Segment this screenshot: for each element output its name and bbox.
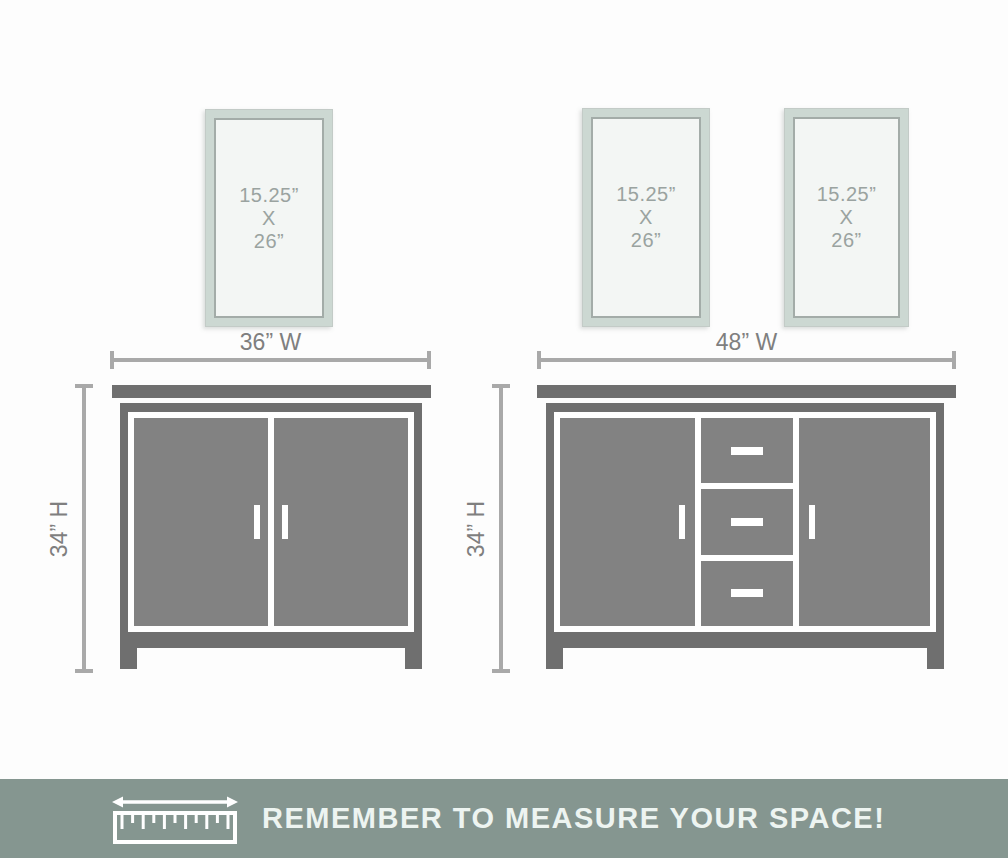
mirror-large-vanity-left: 15.25” X 26” [582, 108, 710, 327]
height-dimension-small: 34” H [75, 384, 93, 673]
mirror-height-text: 26” [616, 229, 676, 252]
width-dimension-label: 48” W [537, 331, 956, 354]
mirror-large-vanity-right: 15.25” X 26” [784, 108, 909, 327]
dimension-endcap-bottom [75, 669, 93, 673]
dimension-line [112, 358, 429, 362]
mirror-size-label: 15.25” X 26” [616, 183, 676, 252]
reminder-banner: REMEMBER TO MEASURE YOUR SPACE! [0, 779, 1008, 858]
cabinet-door-right [799, 418, 930, 626]
width-dimension-label: 36” W [110, 331, 431, 354]
mirror-width-text: 15.25” [239, 184, 299, 207]
countertop [537, 385, 956, 398]
drawer-top [701, 418, 793, 483]
drawer-middle [701, 489, 793, 554]
leg-right [405, 648, 422, 669]
mirror-x-text: X [616, 206, 676, 229]
dimension-endcap-right [952, 351, 956, 369]
door-handle [254, 505, 260, 539]
cabinet-face-panel [128, 412, 414, 632]
door-handle [679, 505, 685, 539]
vanity-size-diagram: 15.25” X 26” 15.25” X 26” 15.25” X 26” 3… [0, 0, 1008, 858]
height-dimension-large: 34” H [492, 384, 510, 673]
mirror-glass: 15.25” X 26” [793, 117, 900, 318]
cabinet-door-right [274, 418, 408, 626]
dimension-endcap-left [110, 351, 114, 369]
width-dimension-48: 48” W [537, 331, 956, 371]
vanity-48-inch [537, 385, 956, 669]
drawer-bottom [701, 561, 793, 626]
mirror-size-label: 15.25” X 26” [239, 184, 299, 253]
mirror-width-text: 15.25” [817, 183, 877, 206]
cabinet-body [546, 403, 944, 648]
cabinet-door-left [560, 418, 695, 626]
mirror-small-vanity: 15.25” X 26” [205, 109, 333, 327]
mirror-glass: 15.25” X 26” [214, 118, 324, 318]
drawer-handle [731, 518, 763, 526]
dimension-endcap-top [75, 384, 93, 388]
dimension-line [539, 358, 954, 362]
leg-left [120, 648, 137, 669]
mirror-width-text: 15.25” [616, 183, 676, 206]
banner-text: REMEMBER TO MEASURE YOUR SPACE! [262, 802, 885, 835]
vanity-36-inch [112, 385, 431, 669]
mirror-size-label: 15.25” X 26” [817, 183, 877, 252]
dimension-endcap-top [492, 384, 510, 388]
mirror-x-text: X [239, 207, 299, 230]
drawer-handle [731, 589, 763, 597]
ruler-icon [112, 794, 238, 844]
cabinet-body [120, 403, 422, 648]
leg-right [927, 648, 944, 669]
dimension-endcap-bottom [492, 669, 510, 673]
dimension-line [82, 384, 86, 673]
mirror-height-text: 26” [817, 229, 877, 252]
countertop [112, 385, 431, 398]
dimension-line [499, 384, 503, 673]
cabinet-face-panel [554, 412, 936, 632]
cabinet-door-left [134, 418, 268, 626]
width-dimension-36: 36” W [110, 331, 431, 371]
door-handle [282, 505, 288, 539]
dimension-endcap-right [427, 351, 431, 369]
door-handle [809, 505, 815, 539]
height-dimension-label: 34” H [463, 500, 490, 556]
drawer-handle [731, 447, 763, 455]
dimension-endcap-left [537, 351, 541, 369]
leg-left [546, 648, 563, 669]
height-dimension-label: 34” H [46, 500, 73, 556]
mirror-height-text: 26” [239, 230, 299, 253]
drawer-column [701, 418, 793, 626]
mirror-glass: 15.25” X 26” [591, 117, 701, 318]
mirror-x-text: X [817, 206, 877, 229]
